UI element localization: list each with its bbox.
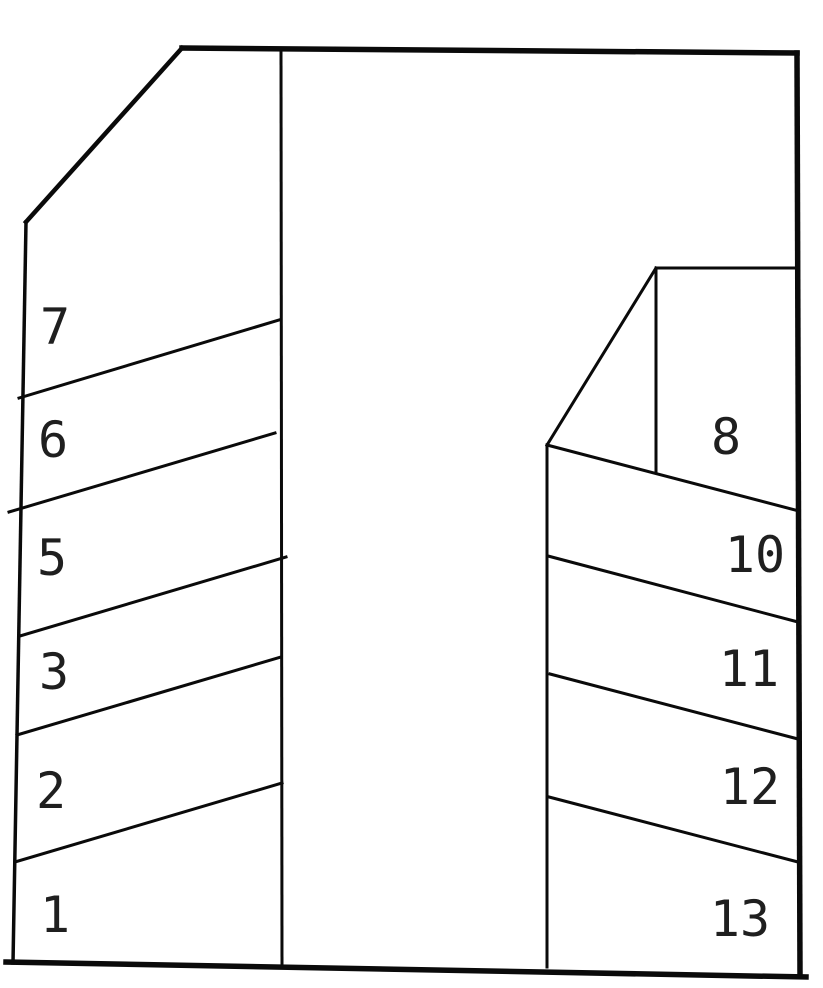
stall-label-5: 5 bbox=[37, 529, 67, 587]
stall-label-1: 1 bbox=[40, 886, 70, 944]
outer-top-border bbox=[182, 48, 797, 53]
stall8-hypotenuse bbox=[547, 268, 656, 445]
stall-label-10: 10 bbox=[725, 526, 785, 584]
stall-divider-8-10 bbox=[547, 445, 799, 511]
stall-label-2: 2 bbox=[36, 762, 66, 820]
parking-lot-diagram: 765321810111213 bbox=[0, 0, 823, 988]
stall-label-13: 13 bbox=[710, 890, 770, 948]
stall-label-3: 3 bbox=[39, 643, 69, 701]
outer-top-left-diagonal bbox=[26, 48, 182, 222]
stall-label-6: 6 bbox=[38, 411, 68, 469]
outer-left-border bbox=[13, 222, 26, 963]
center-lane-divider bbox=[281, 50, 282, 965]
stall-label-11: 11 bbox=[719, 640, 779, 698]
outer-bottom-border bbox=[6, 962, 806, 977]
stall-label-8: 8 bbox=[711, 408, 741, 466]
stall-label-12: 12 bbox=[720, 758, 780, 816]
diagram-canvas: 765321810111213 bbox=[0, 0, 823, 988]
outer-right-border bbox=[797, 53, 800, 975]
stall-label-7: 7 bbox=[40, 298, 70, 356]
